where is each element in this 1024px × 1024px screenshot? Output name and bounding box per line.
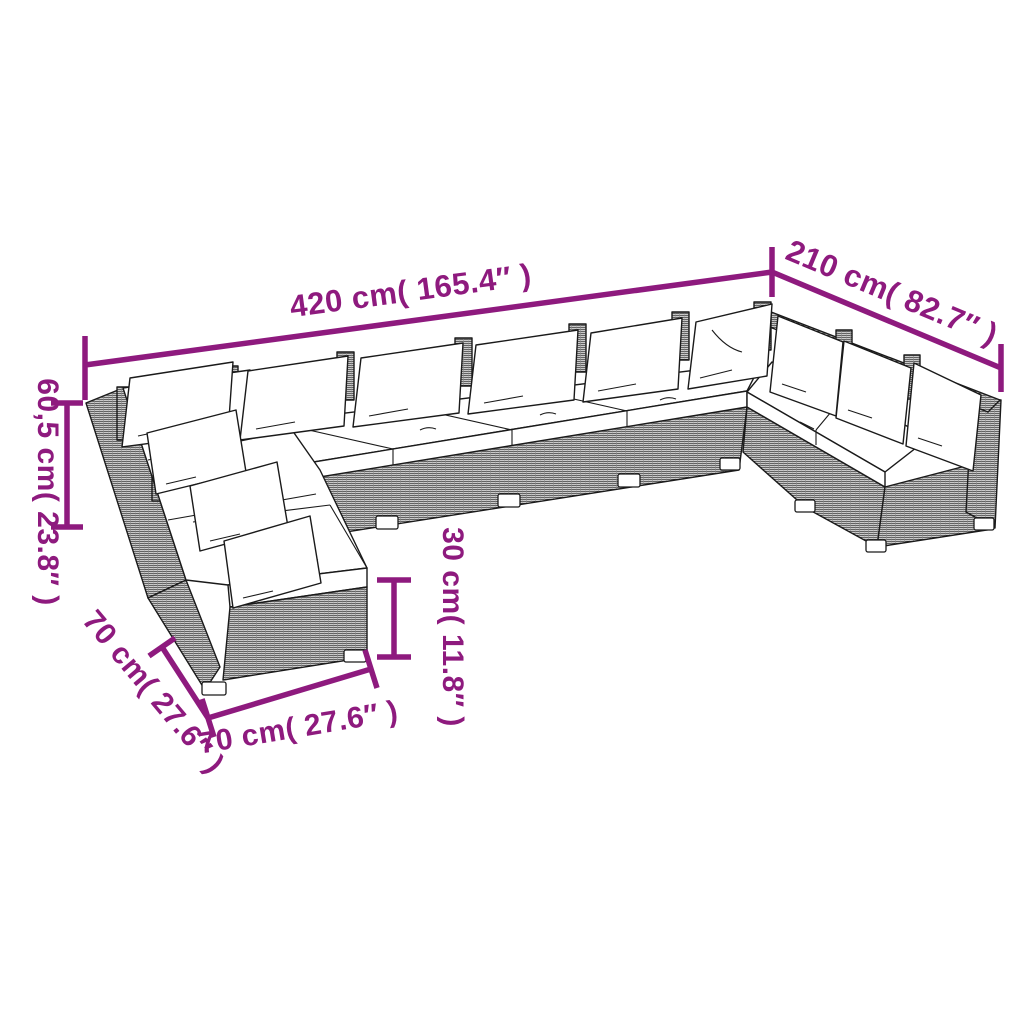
pillow [468, 330, 578, 414]
pillow [240, 356, 348, 440]
product-dimension-diagram: 420 cm( 165.4″ ) 210 cm( 82.7″ ) 60,5 cm… [0, 0, 1024, 1024]
dimension-back-height: 60,5 cm( 23.8″ ) [31, 378, 83, 606]
dimension-line [377, 580, 411, 657]
pillow [353, 343, 463, 427]
sofa-line-art [86, 302, 1001, 695]
diagram-svg: 420 cm( 165.4″ ) 210 cm( 82.7″ ) 60,5 cm… [0, 0, 1024, 1024]
pillow [906, 363, 981, 471]
dimension-seat-height-label: 30 cm( 11.8″ ) [436, 527, 469, 727]
dimension-total-width-label: 420 cm( 165.4″ ) [288, 257, 534, 324]
dimension-back-height-label: 60,5 cm( 23.8″ ) [31, 378, 64, 606]
dimension-module-width-label: 70 cm( 27.6″ ) [196, 695, 400, 761]
pillow [583, 318, 682, 402]
